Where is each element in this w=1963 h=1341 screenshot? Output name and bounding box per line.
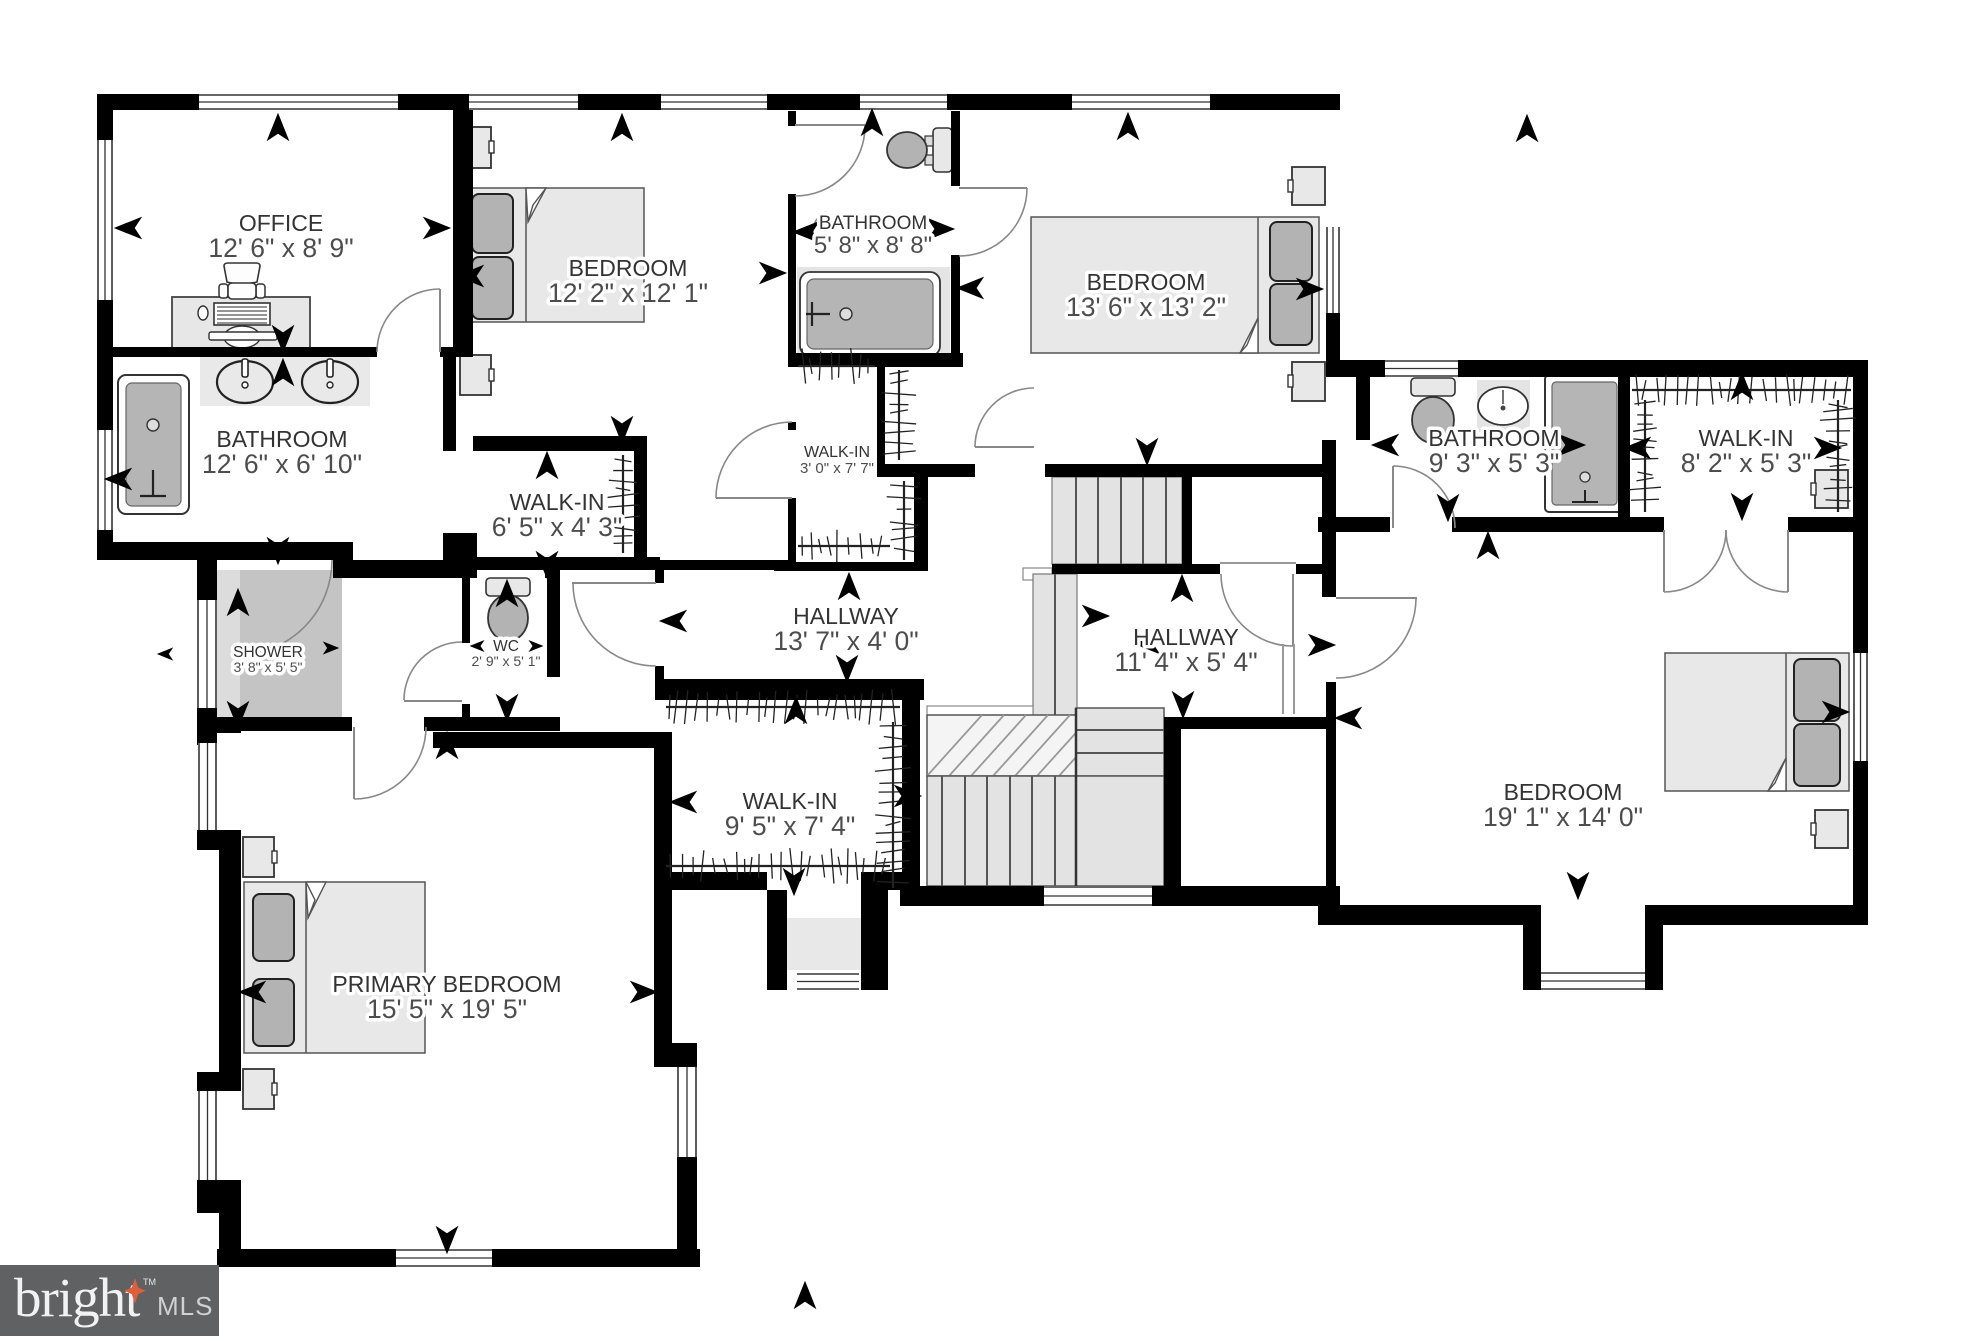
svg-text:6' 5" x 4' 3": 6' 5" x 4' 3" (492, 512, 623, 542)
svg-text:8' 2" x 5' 3": 8' 2" x 5' 3" (1681, 448, 1812, 478)
svg-text:3' 0" x 7' 7": 3' 0" x 7' 7" (800, 460, 874, 477)
svg-text:3' 8" x 5' 5": 3' 8" x 5' 5" (234, 659, 303, 675)
svg-text:2' 9" x 5' 1": 2' 9" x 5' 1" (472, 653, 541, 669)
svg-text:13' 6" x 13' 2": 13' 6" x 13' 2" (1066, 292, 1226, 322)
svg-text:15' 5" x 19' 5": 15' 5" x 19' 5" (367, 994, 527, 1024)
svg-text:9' 3" x 5' 3": 9' 3" x 5' 3" (1429, 448, 1560, 478)
svg-text:WALK-IN: WALK-IN (804, 444, 870, 461)
svg-text:9' 5" x 7' 4": 9' 5" x 7' 4" (725, 811, 856, 841)
svg-text:bright: bright (14, 1267, 140, 1328)
svg-text:BATHROOM: BATHROOM (819, 213, 927, 234)
svg-text:12' 2" x 12' 1": 12' 2" x 12' 1" (548, 278, 708, 308)
svg-text:12' 6" x 8' 9": 12' 6" x 8' 9" (208, 233, 353, 263)
svg-text:11' 4" x 5' 4": 11' 4" x 5' 4" (1114, 647, 1257, 677)
svg-text:13' 7" x 4' 0": 13' 7" x 4' 0" (773, 626, 918, 656)
svg-text:TM: TM (143, 1277, 156, 1287)
svg-text:MLS: MLS (157, 1291, 213, 1321)
svg-text:19' 1" x 14' 0": 19' 1" x 14' 0" (1483, 802, 1643, 832)
svg-text:12' 6" x 6' 10": 12' 6" x 6' 10" (202, 449, 362, 479)
svg-text:5' 8" x 8' 8": 5' 8" x 8' 8" (814, 232, 932, 259)
